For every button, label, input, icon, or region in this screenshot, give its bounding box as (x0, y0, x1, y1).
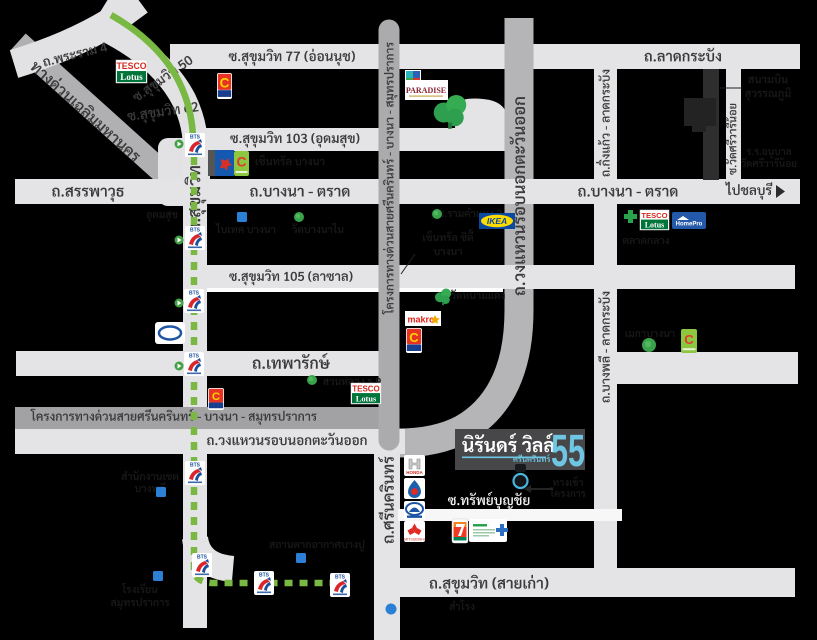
svg-text:BTS: BTS (197, 555, 208, 561)
svg-text:makro: makro (407, 315, 435, 325)
svg-text:Lotus: Lotus (356, 394, 377, 403)
svg-text:TESCO: TESCO (641, 211, 667, 220)
svg-text:C: C (212, 391, 220, 403)
svg-text:BTS: BTS (190, 228, 201, 234)
svg-text:C: C (237, 155, 247, 170)
svg-text:C: C (220, 75, 230, 90)
svg-text:MITSUBISHI: MITSUBISHI (404, 538, 425, 542)
svg-text:Lotus: Lotus (645, 221, 665, 230)
svg-text:BTS: BTS (190, 135, 201, 141)
svg-text:BTS: BTS (190, 463, 201, 469)
svg-text:TESCO: TESCO (352, 384, 379, 393)
svg-text:C: C (684, 332, 694, 347)
svg-text:C: C (409, 330, 419, 345)
svg-text:HONDA: HONDA (406, 470, 423, 475)
svg-text:TESCO: TESCO (116, 61, 146, 71)
svg-text:BTS: BTS (335, 575, 346, 581)
svg-text:IKEA: IKEA (487, 216, 507, 226)
svg-text:BTS: BTS (259, 573, 270, 579)
svg-text:PARADISE: PARADISE (406, 86, 446, 95)
svg-text:55: 55 (551, 426, 585, 476)
svg-text:BTS: BTS (189, 354, 200, 360)
svg-text:HomePro: HomePro (676, 222, 703, 228)
svg-text:Lotus: Lotus (120, 72, 143, 82)
svg-text:BTS: BTS (189, 291, 200, 297)
